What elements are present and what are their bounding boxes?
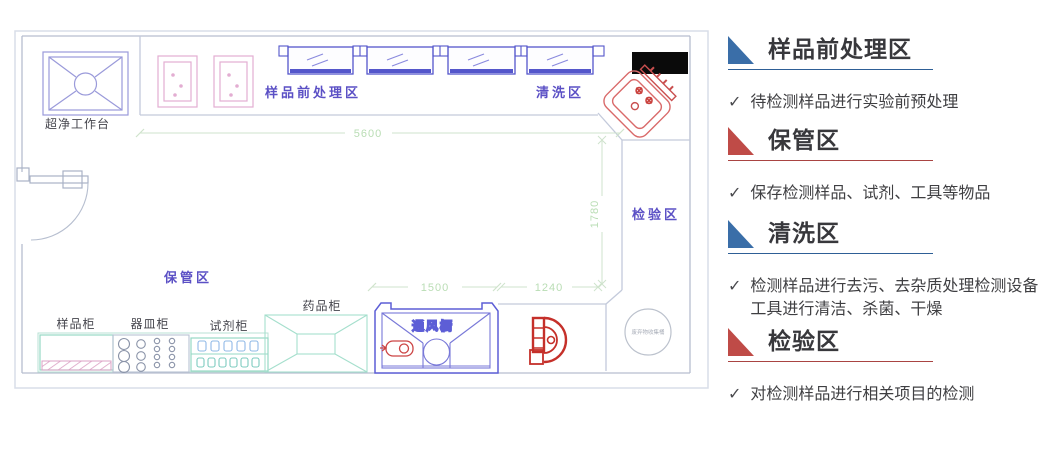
section-title: 保管区 xyxy=(768,121,840,155)
section-storage: 保管区 ✓ 保存检测样品、试剂、工具等物品 xyxy=(728,121,1048,205)
section-header: 保管区 xyxy=(728,121,933,161)
svg-text:1500: 1500 xyxy=(421,282,449,294)
black-cabinet xyxy=(632,52,688,74)
floor-plan-svg: 超净工作台 样品前处理区 清洗区 检验区 保管区 5600 xyxy=(0,0,720,452)
vessel-cabinet-label: 器皿柜 xyxy=(130,317,169,331)
door-handle xyxy=(63,171,82,188)
svg-text:1240: 1240 xyxy=(535,282,563,294)
bullet-text: 检测样品进行去污、去杂质处理检测设备工具进行清洁、杀菌、干燥 xyxy=(750,275,1048,321)
chair-symbol xyxy=(530,318,566,364)
triangle-accent-icon xyxy=(728,328,754,356)
clean-bench-label: 超净工作台 xyxy=(45,116,110,131)
slide: 超净工作台 样品前处理区 清洗区 检验区 保管区 5600 xyxy=(0,0,1050,452)
section-title: 检验区 xyxy=(768,322,840,356)
bullet-text: 对检测样品进行相关项目的检测 xyxy=(750,383,974,406)
window xyxy=(288,47,353,74)
sample-cabinet xyxy=(40,335,113,370)
section-bullet: ✓ 待检测样品进行实验前预处理 xyxy=(728,91,1048,114)
zone-washing-label: 清洗区 xyxy=(536,85,584,100)
zone-storage-label: 保管区 xyxy=(163,270,212,285)
fume-hood-label: 通风橱 xyxy=(412,318,454,333)
section-bullet: ✓ 对检测样品进行相关项目的检测 xyxy=(728,383,1048,406)
vessel-cabinet xyxy=(113,335,189,373)
section-sample-prep: 样品前处理区 ✓ 待检测样品进行实验前预处理 xyxy=(728,30,1048,114)
waste-container: 废弃物收集桶 xyxy=(625,309,671,355)
section-title: 样品前处理区 xyxy=(768,30,912,64)
dimension-top-width: 5600 xyxy=(136,128,624,140)
bullet-text: 待检测样品进行实验前预处理 xyxy=(750,91,958,114)
windows xyxy=(279,46,604,74)
dimension-fume-hood-width: 1500 xyxy=(368,282,501,294)
door xyxy=(17,168,88,240)
triangle-accent-icon xyxy=(728,36,754,64)
waste-container-label: 废弃物收集桶 xyxy=(631,328,665,336)
section-bullet: ✓ 检测样品进行去污、去杂质处理检测设备工具进行清洁、杀菌、干燥 xyxy=(728,275,1048,321)
reagent-cabinet xyxy=(191,338,268,371)
section-testing: 检验区 ✓ 对检测样品进行相关项目的检测 xyxy=(728,322,1048,406)
check-icon: ✓ xyxy=(728,182,741,205)
section-header: 检验区 xyxy=(728,322,933,362)
check-icon: ✓ xyxy=(728,383,741,406)
floor-plan: 超净工作台 样品前处理区 清洗区 检验区 保管区 5600 xyxy=(0,0,720,452)
dimension-right-height: 1780 xyxy=(589,136,606,288)
reagent-bottles-row1 xyxy=(198,341,258,351)
bullet-text: 保存检测样品、试剂、工具等物品 xyxy=(750,182,990,205)
section-washing: 清洗区 ✓ 检测样品进行去污、去杂质处理检测设备工具进行清洁、杀菌、干燥 xyxy=(728,214,1048,321)
sample-cabinet-label: 样品柜 xyxy=(56,316,95,331)
section-title: 清洗区 xyxy=(768,214,840,248)
svg-text:1780: 1780 xyxy=(589,200,601,228)
reagent-cabinet-label: 试剂柜 xyxy=(209,318,248,333)
fume-hood: 通风橱 xyxy=(375,303,498,373)
medicine-cabinet-label: 药品柜 xyxy=(302,299,341,313)
bench-equipment-pink xyxy=(158,56,253,107)
dimension-corner-width: 1240 xyxy=(497,282,602,294)
check-icon: ✓ xyxy=(728,275,741,321)
zone-testing-label: 检验区 xyxy=(632,207,680,222)
clean-bench xyxy=(43,52,128,115)
medicine-cabinet xyxy=(265,315,367,372)
door-swing-arc xyxy=(31,183,88,240)
check-icon: ✓ xyxy=(728,91,741,114)
svg-text:5600: 5600 xyxy=(354,128,382,140)
window xyxy=(367,47,433,74)
section-bullet: ✓ 保存检测样品、试剂、工具等物品 xyxy=(728,182,1048,205)
window xyxy=(448,47,515,74)
section-header: 样品前处理区 xyxy=(728,30,933,70)
window xyxy=(527,47,593,74)
legend-panel: 样品前处理区 ✓ 待检测样品进行实验前预处理 保管区 ✓ 保存检测样品、试剂、工… xyxy=(728,0,1050,452)
triangle-accent-icon xyxy=(728,220,754,248)
triangle-accent-icon xyxy=(728,127,754,155)
reagent-bottles-row2 xyxy=(197,358,259,367)
zone-sample-prep-label: 样品前处理区 xyxy=(265,85,361,100)
section-header: 清洗区 xyxy=(728,214,933,254)
